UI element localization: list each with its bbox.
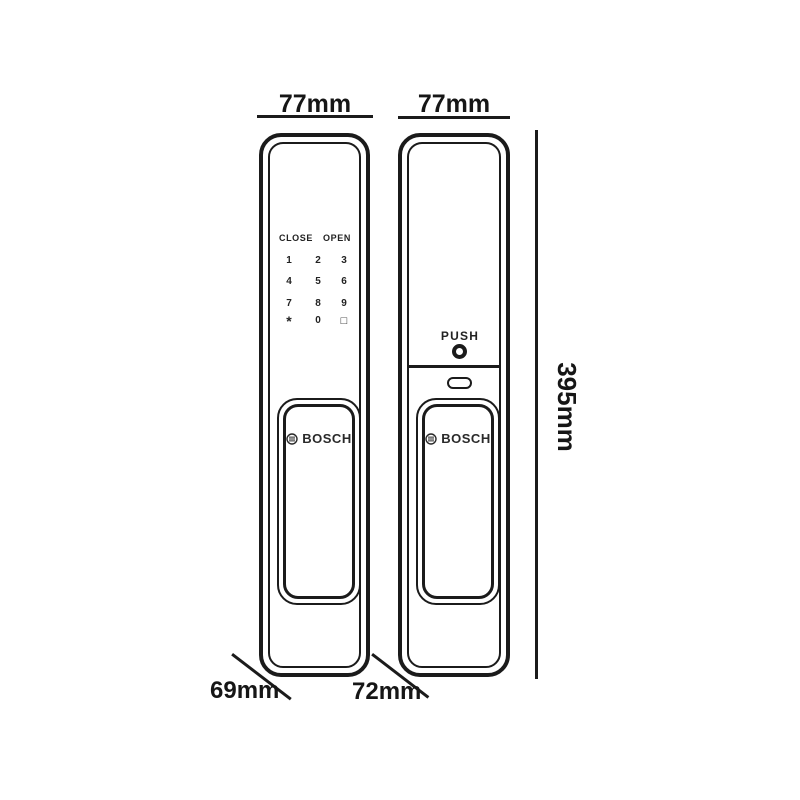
front-brand-text: BOSCH bbox=[302, 431, 351, 446]
bosch-logo-icon bbox=[286, 433, 298, 445]
key-square-icon: □ bbox=[332, 314, 356, 328]
push-label: PUSH bbox=[430, 329, 490, 343]
key-asterisk: * bbox=[277, 313, 301, 327]
back-brand-text: BOSCH bbox=[441, 431, 490, 446]
panel-separator-line bbox=[407, 365, 501, 368]
open-key: OPEN bbox=[317, 233, 357, 243]
front-brand: BOSCH bbox=[286, 431, 352, 446]
back-handle-inner-outline: BOSCH bbox=[422, 404, 494, 599]
door-lock-dimension-diagram: 77mm 77mm CLOSE OPEN 1 2 3 4 5 6 7 8 9 *… bbox=[0, 0, 800, 800]
push-button-icon bbox=[452, 344, 467, 359]
back-width-label: 77mm bbox=[398, 90, 510, 119]
front-width-dimension-line bbox=[257, 115, 373, 118]
key-5: 5 bbox=[306, 275, 330, 289]
back-brand: BOSCH bbox=[425, 431, 491, 446]
front-handle: BOSCH bbox=[277, 398, 361, 605]
key-2: 2 bbox=[306, 254, 330, 268]
back-panel: PUSH BOSCH bbox=[398, 133, 510, 677]
back-depth-label: 72mm bbox=[352, 678, 410, 706]
keyhole-cover-icon bbox=[447, 377, 472, 389]
bosch-logo-icon bbox=[425, 433, 437, 445]
key-8: 8 bbox=[306, 297, 330, 311]
back-handle: BOSCH bbox=[416, 398, 500, 605]
key-3: 3 bbox=[332, 254, 356, 268]
height-label: 395mm bbox=[552, 337, 582, 477]
height-dimension-line bbox=[535, 130, 538, 679]
key-1: 1 bbox=[277, 254, 301, 268]
key-9: 9 bbox=[332, 297, 356, 311]
key-0: 0 bbox=[306, 314, 330, 328]
front-depth-label: 69mm bbox=[210, 677, 270, 705]
key-6: 6 bbox=[332, 275, 356, 289]
front-handle-inner-outline: BOSCH bbox=[283, 404, 355, 599]
close-key: CLOSE bbox=[276, 233, 316, 243]
key-4: 4 bbox=[277, 275, 301, 289]
front-panel: CLOSE OPEN 1 2 3 4 5 6 7 8 9 * 0 □ BOSCH bbox=[259, 133, 370, 677]
back-width-dimension-line bbox=[398, 116, 510, 119]
key-7: 7 bbox=[277, 297, 301, 311]
